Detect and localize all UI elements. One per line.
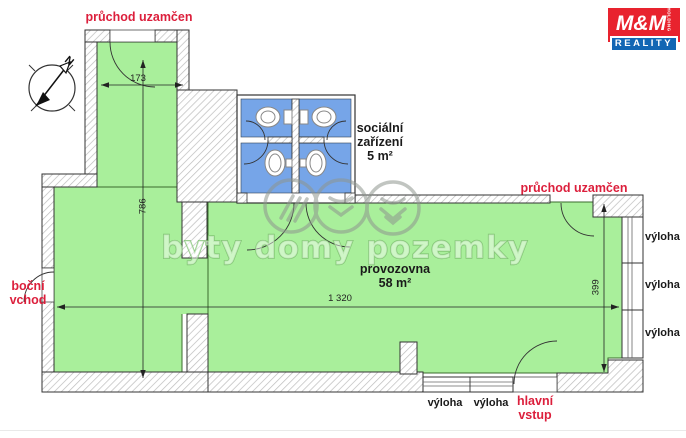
watermark-text: byty domy pozemky [161,230,529,266]
dimension-premises-depth: 399 [592,272,603,302]
toilet-tank-icon [284,110,292,124]
passage-locked-label-right: průchod uzamčen [518,181,630,195]
logo-mm-text: M&M [608,9,674,39]
dimension-corridor-width: 173 [120,74,156,85]
wall [177,30,189,90]
compass: N [29,54,76,111]
sanitary-room-label: sociální zařízení 5 m² [350,121,410,163]
logo-reality-text: REALITY [610,36,678,52]
premises-room-label: provozovna 58 m² [345,262,445,290]
window-label-right-1: výloha [645,231,685,243]
compass-circle [29,65,75,111]
dimension-premises-length: 1 320 [318,294,362,305]
corridor-area [97,42,177,202]
door-opening-main [513,377,557,392]
compass-needle-tail [36,92,50,106]
sanitary-divider [299,137,324,143]
sanitary-divider [268,137,292,143]
wall [42,174,97,187]
toilet-bowl-icon [317,111,331,123]
floor-plan: N byty domy pozemky průchod uzamčen průc… [0,0,686,438]
faucet-icon [286,159,292,167]
wall-pillar [400,342,417,374]
sink-basin-icon [310,154,322,172]
shop-window-right [622,217,643,358]
mm-reality-logo: M&M HOLDING REALITY [608,8,682,56]
faucet-icon [300,159,306,167]
toilet-tank-icon [300,110,308,124]
left-room-area [54,187,182,372]
passage-locked-label-top: průchod uzamčen [84,10,194,24]
side-entrance-label: boční vchod [2,279,54,307]
logo-holding-text: HOLDING [666,7,671,31]
partition-gap [177,258,208,314]
wall [177,90,237,202]
sanitary-block [237,95,355,203]
dimension-corridor-length: 786 [139,191,150,221]
floor-plan-drawing: N byty domy pozemky [0,0,686,438]
wall [42,300,54,380]
wall [42,372,208,392]
wall [85,30,110,42]
door-opening-top [110,30,155,42]
sink-basin-icon [269,154,281,172]
toilet-bowl-icon [261,111,275,123]
wall [237,193,247,203]
window-label-bottom-1: výloha [422,397,468,409]
wall [593,195,643,217]
image-edge-line [0,430,686,431]
main-entrance-label: hlavní vstup [506,394,564,422]
window-label-right-2: výloha [645,279,685,291]
shop-window-bottom [423,377,513,392]
wall [85,42,97,174]
wall [208,372,423,392]
wall [187,314,208,372]
wall [42,187,54,268]
window-label-bottom-2: výloha [468,397,514,409]
window-label-right-3: výloha [645,327,685,339]
